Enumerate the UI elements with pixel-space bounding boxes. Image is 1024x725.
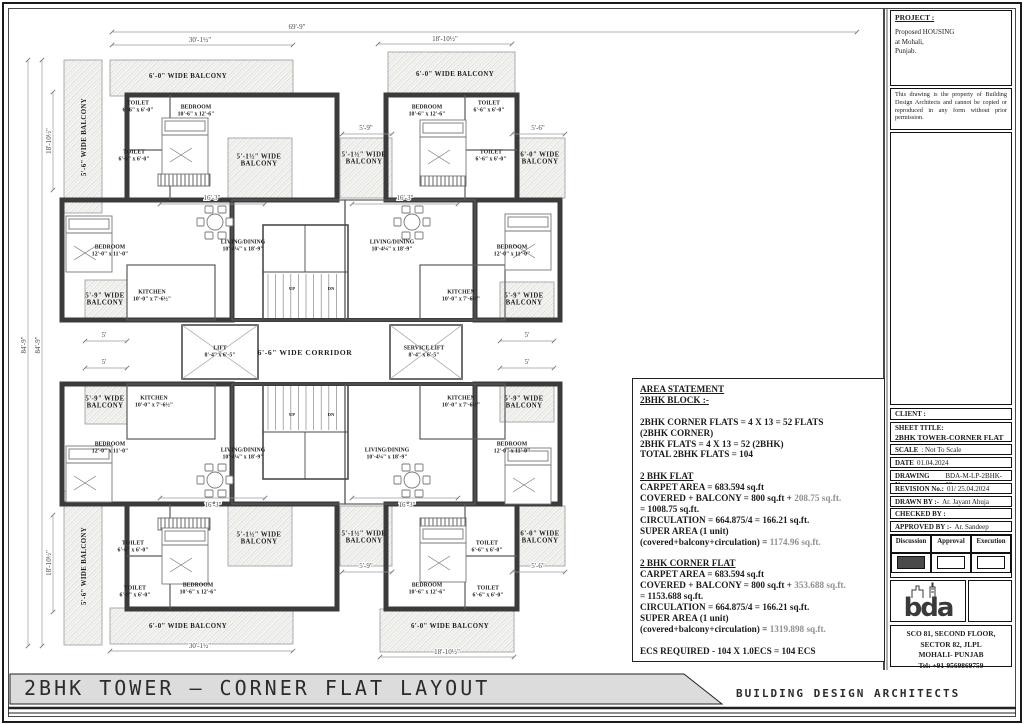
area-statement-line: = 1008.75 sq.ft. bbox=[640, 504, 877, 515]
approval-swatch-discussion bbox=[891, 553, 931, 573]
notes-empty-box bbox=[890, 132, 1012, 405]
area-statement-line: 2BHK CORNER FLATS = 4 X 13 = 52 FLATS bbox=[640, 417, 877, 428]
approval-header-approval: Approval bbox=[931, 535, 971, 553]
room-label-toilet: TOILET6'-6" x 6'-0" bbox=[474, 101, 505, 114]
row-label: DATE bbox=[895, 459, 914, 468]
area-statement-line bbox=[640, 406, 877, 417]
approval-header-discussion: Discussion bbox=[891, 535, 931, 553]
balcony-label: 5'-9" WIDEBALCONY bbox=[85, 293, 124, 307]
title-block-row-drawn-by: DRAWN BY :-Ar. Jayant Ahuja bbox=[890, 496, 1012, 507]
address-line: SECTOR 82, JLPL bbox=[891, 640, 1011, 651]
dim-label: 30'-1½" bbox=[189, 36, 211, 44]
balcony-label: 5'-9" WIDEBALCONY bbox=[504, 396, 543, 410]
room-label-living-dining: LIVING/DINING10'-4¼" x 18'-9" bbox=[370, 240, 415, 253]
row-value: : Not To Scale bbox=[921, 446, 961, 455]
dim-label: 84'-9" bbox=[34, 336, 42, 353]
room-label-bedroom: BEDROOM10'-6" x 12'-6" bbox=[409, 105, 446, 118]
title-block-row-approved-by: APPROVED BY :-Ar. Sandeep bbox=[890, 521, 1012, 532]
room-label-bedroom: BEDROOM10'-6" x 12'-6" bbox=[178, 105, 215, 118]
area-statement-line bbox=[640, 635, 877, 646]
area-statement-line: ECS REQUIRED - 104 X 1.0ECS = 104 ECS bbox=[640, 646, 877, 657]
stair-dn-label: DN bbox=[328, 412, 335, 417]
room-label-kitchen: KITCHEN10'-0" x 7'-6½" bbox=[442, 290, 480, 303]
dim-label: 18'-10½" bbox=[434, 648, 460, 656]
drawing-sheet: { "footer": { "sheet_title": "2BHK TOWER… bbox=[0, 0, 1024, 725]
filled-status-box bbox=[897, 556, 925, 569]
dim-label: 16'-3" bbox=[204, 194, 221, 202]
address-line: Tel: +91-9569869759 bbox=[891, 661, 1011, 672]
row-label: SCALE bbox=[895, 446, 918, 455]
balcony-label: 5'-1½" WIDEBALCONY bbox=[342, 152, 387, 166]
row-value: Ar. Jayant Ahuja bbox=[942, 498, 989, 507]
dim-label: 18'-10½" bbox=[45, 128, 53, 154]
title-block-row-revision-no: REVISION No.:01/ 25.04.2024 bbox=[890, 483, 1012, 494]
dim-label: 84'-9" bbox=[20, 336, 28, 353]
dim-label: 69'-9" bbox=[289, 23, 306, 31]
dim-label: 18'-10½" bbox=[432, 35, 458, 43]
dim-label: 5'-9" bbox=[359, 124, 373, 132]
balcony-label: 5'-9" WIDEBALCONY bbox=[85, 396, 124, 410]
area-statement-line: = 1153.688 sq.ft. bbox=[640, 591, 877, 602]
balcony-label: 6'-0" WIDE BALCONY bbox=[149, 623, 227, 630]
title-block-row-sheet-title: SHEET TITLE:2BHK TOWER-CORNER FLAT LAYOU… bbox=[890, 422, 1012, 442]
area-statement-line: CARPET AREA = 683.594 sq.ft bbox=[640, 482, 877, 493]
balcony-label: 6'-0" WIDE BALCONY bbox=[411, 623, 489, 630]
project-line: Proposed HOUSING bbox=[895, 28, 1007, 37]
dim-label: 5'-9" bbox=[359, 562, 373, 570]
logo-side-box bbox=[968, 580, 1012, 622]
logo-text: bda bbox=[904, 598, 953, 619]
area-statement-line: CIRCULATION = 664.875/4 = 166.21 sq.ft. bbox=[640, 602, 877, 613]
area-statement-line bbox=[640, 460, 877, 471]
room-label-kitchen: KITCHEN10'-0" x 7'-6½" bbox=[135, 396, 173, 409]
firm-logo: bda bbox=[890, 580, 966, 622]
area-statement-line: COVERED + BALCONY = 800 sq.ft + 353.688 … bbox=[640, 580, 877, 591]
stair-dn-label: DN bbox=[328, 286, 335, 291]
room-label-bedroom: BEDROOM10'-6" x 12'-6" bbox=[409, 583, 446, 596]
empty-status-box bbox=[937, 556, 965, 569]
area-statement-line: 2 BHK FLAT bbox=[640, 471, 877, 482]
title-block-row-drawing-no: DRAWING No.:BDA-M-LP-2BHK-02 bbox=[890, 470, 1012, 481]
row-label: SHEET TITLE: bbox=[895, 424, 944, 432]
title-block-row-client: CLIENT : bbox=[890, 408, 1012, 420]
empty-status-box bbox=[977, 556, 1005, 569]
dim-label: 5'-6" bbox=[531, 562, 545, 570]
room-label-toilet: TOILET6'-6" x 6'-0" bbox=[118, 541, 149, 554]
area-statement-line: TOTAL 2BHK FLATS = 104 bbox=[640, 449, 877, 460]
dim-label: 5' bbox=[525, 358, 530, 366]
title-block-row-scale: SCALE: Not To Scale bbox=[890, 444, 1012, 455]
area-statement: AREA STATEMENT2BHK BLOCK :-2BHK CORNER F… bbox=[632, 378, 885, 662]
room-label-lift: LIFT8'-4" x 6'-5" bbox=[205, 346, 236, 359]
corridor-label: 6'-6" WIDE CORRIDOR bbox=[258, 348, 353, 357]
approval-swatch-execution bbox=[971, 553, 1011, 573]
sheet-title-footer: 2BHK TOWER — CORNER FLAT LAYOUT bbox=[24, 676, 490, 700]
area-statement-line: 2 BHK CORNER FLAT bbox=[640, 558, 877, 569]
area-statement-line: (covered+balcony+circulation) = 1319.898… bbox=[640, 624, 877, 635]
dim-label: 16'-3" bbox=[205, 501, 222, 509]
balcony-label: 5'-6" WIDE BALCONY bbox=[81, 527, 88, 605]
room-label-living-dining: LIVING/DINING10'-4¼" x 18'-9" bbox=[365, 448, 410, 461]
area-statement-line: CIRCULATION = 664.875/4 = 166.21 sq.ft. bbox=[640, 515, 877, 526]
room-label-living-dining: LIVING/DINING10'-4¼" x 18'-9" bbox=[221, 240, 266, 253]
room-label-bedroom: BEDROOM12'-0" x 11'-0" bbox=[92, 442, 128, 455]
balcony-label: 6'-0" WIDEBALCONY bbox=[520, 531, 559, 545]
dim-label: 16'-3" bbox=[397, 194, 414, 202]
address-line: MOHALI- PUNJAB bbox=[891, 650, 1011, 661]
area-statement-line: SUPER AREA (1 unit) bbox=[640, 526, 877, 537]
plan-labels: TOILET6'-6" x 6'-0"BEDROOM10'-6" x 12'-6… bbox=[81, 71, 560, 630]
project-box: PROJECT : Proposed HOUSING at Mohali, Pu… bbox=[890, 10, 1012, 86]
room-label-living-dining: LIVING/DINING10'-4¼" x 18'-9" bbox=[221, 448, 266, 461]
balcony-label: 5'-1½" WIDEBALCONY bbox=[342, 531, 387, 545]
balcony-label: 5'-1½" WIDEBALCONY bbox=[237, 532, 282, 546]
room-label-bedroom: BEDROOM10'-6" x 12'-6" bbox=[180, 583, 217, 596]
dim-label: 16'-3" bbox=[399, 501, 416, 509]
room-label-bedroom: BEDROOM12'-0" x 11'-0" bbox=[92, 245, 128, 258]
row-label: CLIENT : bbox=[895, 410, 926, 419]
balcony-label: 5'-1½" WIDEBALCONY bbox=[237, 154, 282, 168]
project-line: Punjab. bbox=[895, 47, 1007, 56]
area-statement-line: CARPET AREA = 683.594 sq.ft bbox=[640, 569, 877, 580]
project-heading: PROJECT : bbox=[895, 13, 1007, 23]
dim-label: 5' bbox=[102, 331, 107, 339]
balcony-label: 6'-0" WIDE BALCONY bbox=[416, 71, 494, 78]
room-label-toilet: TOILET6'-6" x 6'-0" bbox=[473, 586, 504, 599]
title-block-row-date: DATE01.04.2024 bbox=[890, 457, 1012, 468]
approval-header-execution: Execution bbox=[971, 535, 1011, 553]
room-label-toilet: TOILET6'-6" x 6'-0" bbox=[120, 586, 151, 599]
row-value: 01/ 25.04.2024 bbox=[947, 485, 989, 494]
area-statement-line: SUPER AREA (1 unit) bbox=[640, 613, 877, 624]
balcony-label: 6'-0" WIDE BALCONY bbox=[149, 73, 227, 80]
address-line: SCO 81, SECOND FLOOR, bbox=[891, 629, 1011, 640]
stair-up-label: UP bbox=[289, 286, 295, 291]
room-label-bedroom: BEDROOM12'-0" x 11'-0" bbox=[494, 245, 530, 258]
area-statement-line: AREA STATEMENT bbox=[640, 384, 877, 395]
row-label: APPROVED BY :- bbox=[895, 523, 952, 532]
row-value: Ar. Sandeep bbox=[955, 523, 989, 532]
room-label-kitchen: KITCHEN10'-0" x 7'-6½" bbox=[133, 290, 171, 303]
dim-label: 5' bbox=[102, 358, 107, 366]
dim-label: 5'-6" bbox=[531, 124, 545, 132]
copyright-disclaimer: This drawing is the property of Building… bbox=[890, 88, 1012, 130]
balcony-label: 5'-9" WIDEBALCONY bbox=[504, 293, 543, 307]
room-label-kitchen: KITCHEN10'-0" x 7'-6½" bbox=[442, 396, 480, 409]
firm-name-footer: BUILDING DESIGN ARCHITECTS bbox=[736, 687, 960, 700]
dim-label: 5' bbox=[525, 331, 530, 339]
approval-table: DiscussionApprovalExecution bbox=[890, 534, 1012, 578]
approval-swatch-approval bbox=[931, 553, 971, 573]
room-label-toilet: TOILET6'-6" x 6'-0" bbox=[123, 101, 154, 114]
project-line: at Mohali, bbox=[895, 38, 1007, 47]
area-statement-line: 2BHK FLATS = 4 X 13 = 52 (2BHK) bbox=[640, 439, 877, 450]
row-label: CHECKED BY : bbox=[895, 510, 946, 519]
room-label-bedroom: BEDROOM12'-0" x 11'-0" bbox=[494, 442, 530, 455]
area-statement-line: 2BHK BLOCK :- bbox=[640, 395, 877, 406]
room-label-toilet: TOILET6'-6" x 6'-0" bbox=[476, 150, 507, 163]
row-value: 01.04.2024 bbox=[917, 459, 949, 468]
balcony-label: 6'-0" WIDEBALCONY bbox=[520, 152, 559, 166]
dim-label: 18'-10½" bbox=[45, 550, 53, 576]
area-statement-line: (covered+balcony+circulation) = 1174.96 … bbox=[640, 537, 877, 548]
balcony-label: 5'-6" WIDE BALCONY bbox=[81, 98, 88, 176]
room-label-service-lift: SERVICE LIFT8'-4" x 6'-5" bbox=[404, 346, 445, 359]
dim-label: 30'-1½" bbox=[189, 642, 211, 650]
title-block-row-checked-by: CHECKED BY : bbox=[890, 508, 1012, 519]
room-label-toilet: TOILET6'-6" x 6'-0" bbox=[119, 150, 150, 163]
row-label: REVISION No.: bbox=[895, 485, 944, 494]
room-label-toilet: TOILET6'-6" x 6'-0" bbox=[472, 541, 503, 554]
area-statement-line: (2BHK CORNER) bbox=[640, 428, 877, 439]
firm-address: SCO 81, SECOND FLOOR, SECTOR 82, JLPL MO… bbox=[890, 625, 1012, 667]
area-statement-line bbox=[640, 548, 877, 559]
area-statement-line: COVERED + BALCONY = 800 sq.ft + 208.75 s… bbox=[640, 493, 877, 504]
stair-up-label: UP bbox=[289, 412, 295, 417]
row-label: DRAWN BY :- bbox=[895, 498, 939, 507]
